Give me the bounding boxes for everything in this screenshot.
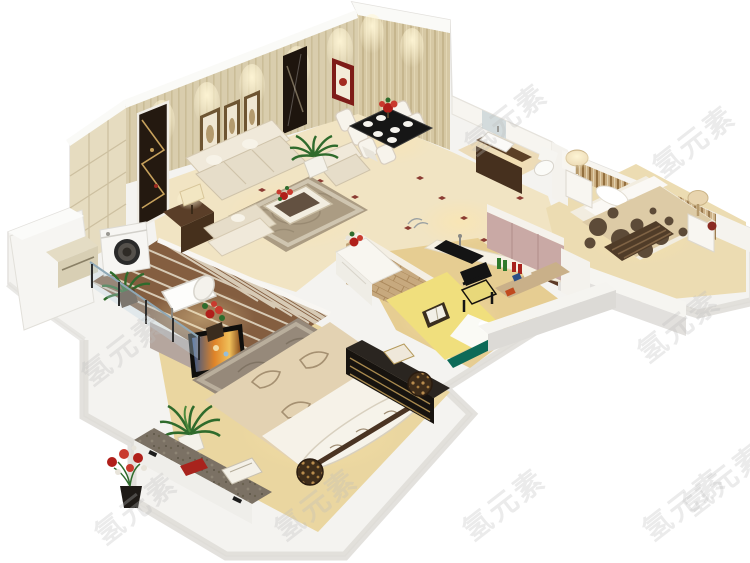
- leopard-cushion-left: [297, 459, 323, 485]
- floorplan-render: 氢元素氢元素氢元素氢元素氢元素氢元素氢元素氢元素氢元素: [0, 0, 750, 563]
- display-niche: [138, 102, 168, 228]
- leopard-stool: [408, 372, 432, 396]
- red-picture: [332, 58, 354, 106]
- washing-machine: [100, 222, 150, 276]
- red-ornament: [708, 222, 717, 231]
- wall-mirror: [283, 46, 307, 134]
- floorplan-svg: [0, 0, 750, 563]
